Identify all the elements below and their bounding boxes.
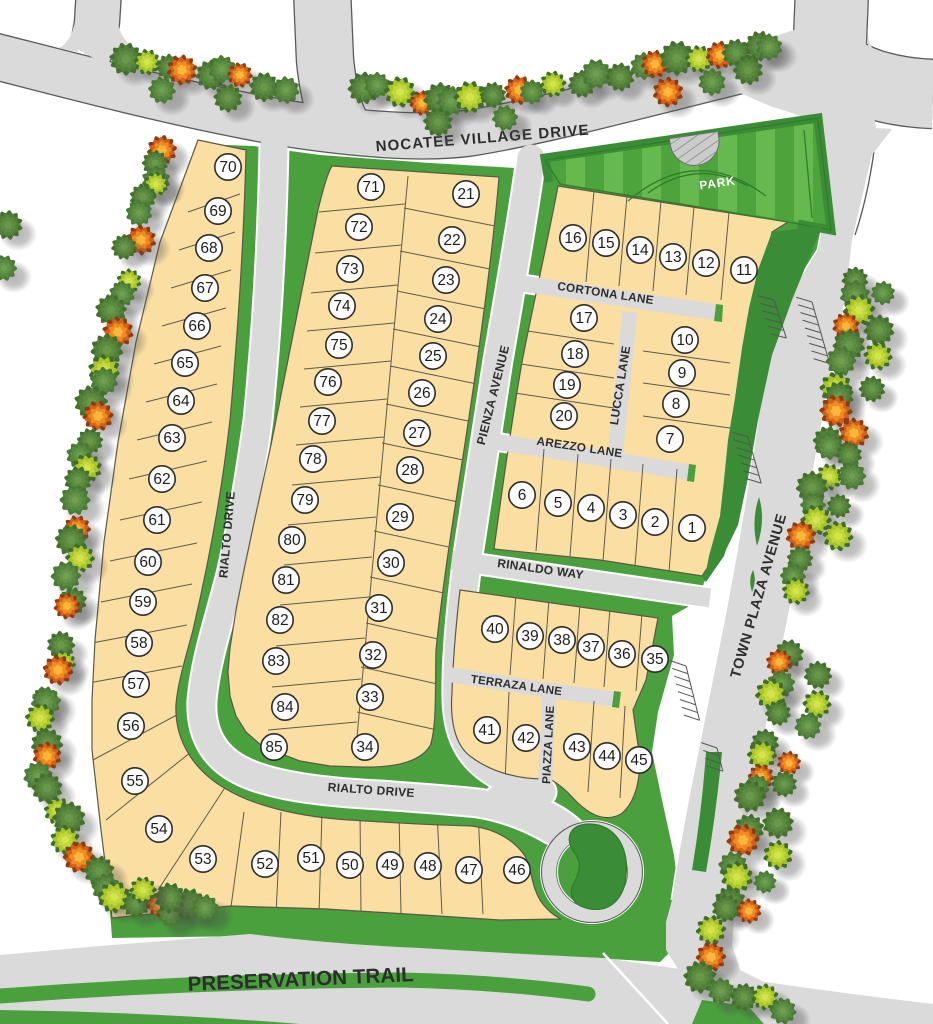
svg-text:23: 23 <box>437 272 454 289</box>
svg-text:46: 46 <box>508 862 525 879</box>
svg-text:48: 48 <box>419 858 436 875</box>
svg-text:21: 21 <box>457 186 474 203</box>
svg-text:61: 61 <box>148 512 165 529</box>
svg-text:20: 20 <box>555 408 573 425</box>
svg-text:18: 18 <box>566 346 583 363</box>
svg-text:15: 15 <box>597 235 614 252</box>
svg-text:16: 16 <box>564 230 581 247</box>
svg-text:35: 35 <box>646 651 663 668</box>
svg-text:56: 56 <box>122 718 139 735</box>
svg-text:33: 33 <box>361 689 378 706</box>
svg-text:6: 6 <box>518 487 527 504</box>
svg-text:84: 84 <box>276 699 294 716</box>
svg-text:22: 22 <box>443 232 460 249</box>
svg-text:79: 79 <box>296 492 313 509</box>
svg-text:53: 53 <box>194 851 211 868</box>
svg-text:29: 29 <box>391 509 408 526</box>
svg-text:55: 55 <box>126 773 143 790</box>
svg-text:71: 71 <box>362 179 379 196</box>
svg-text:75: 75 <box>330 337 347 354</box>
svg-text:12: 12 <box>697 255 714 272</box>
svg-text:62: 62 <box>153 471 170 488</box>
svg-text:57: 57 <box>127 676 144 693</box>
svg-text:74: 74 <box>333 298 351 315</box>
svg-text:67: 67 <box>196 280 213 297</box>
svg-text:31: 31 <box>370 600 387 617</box>
svg-text:9: 9 <box>678 365 687 382</box>
svg-text:44: 44 <box>598 748 616 765</box>
svg-text:37: 37 <box>582 639 599 656</box>
svg-text:24: 24 <box>429 311 447 328</box>
svg-text:50: 50 <box>341 857 359 874</box>
svg-text:8: 8 <box>672 396 681 413</box>
svg-text:81: 81 <box>277 572 294 589</box>
svg-text:59: 59 <box>134 594 151 611</box>
svg-text:54: 54 <box>150 821 168 838</box>
svg-text:38: 38 <box>553 632 570 649</box>
svg-text:28: 28 <box>401 462 418 479</box>
svg-text:14: 14 <box>631 242 649 259</box>
svg-text:58: 58 <box>130 635 147 652</box>
svg-text:76: 76 <box>319 374 336 391</box>
svg-text:45: 45 <box>630 752 647 769</box>
svg-text:13: 13 <box>664 249 681 266</box>
svg-text:17: 17 <box>575 310 592 327</box>
svg-text:63: 63 <box>163 430 180 447</box>
svg-text:36: 36 <box>613 646 630 663</box>
svg-text:51: 51 <box>302 850 319 867</box>
svg-text:78: 78 <box>304 451 321 468</box>
svg-text:1: 1 <box>688 520 697 537</box>
svg-text:27: 27 <box>408 425 425 442</box>
svg-text:66: 66 <box>188 318 205 335</box>
svg-text:41: 41 <box>478 722 495 739</box>
svg-text:49: 49 <box>381 857 398 874</box>
svg-text:80: 80 <box>283 532 301 549</box>
svg-text:19: 19 <box>558 377 575 394</box>
svg-text:69: 69 <box>209 203 226 220</box>
svg-text:65: 65 <box>176 355 193 372</box>
svg-text:2: 2 <box>651 514 660 531</box>
svg-text:77: 77 <box>313 413 330 430</box>
svg-text:85: 85 <box>265 739 282 756</box>
svg-text:47: 47 <box>460 862 477 879</box>
svg-text:26: 26 <box>413 385 430 402</box>
svg-text:32: 32 <box>364 647 381 664</box>
svg-text:60: 60 <box>139 554 157 571</box>
svg-text:43: 43 <box>568 739 585 756</box>
svg-text:73: 73 <box>341 261 358 278</box>
svg-text:10: 10 <box>676 332 694 349</box>
svg-text:4: 4 <box>587 500 596 517</box>
svg-text:82: 82 <box>271 612 288 629</box>
svg-text:72: 72 <box>350 219 367 236</box>
svg-text:7: 7 <box>666 431 675 448</box>
svg-text:25: 25 <box>424 348 441 365</box>
svg-text:64: 64 <box>172 393 190 410</box>
svg-text:68: 68 <box>200 240 217 257</box>
svg-text:11: 11 <box>736 262 752 279</box>
svg-text:5: 5 <box>554 495 563 512</box>
svg-text:34: 34 <box>356 739 374 756</box>
svg-text:30: 30 <box>382 555 400 572</box>
svg-text:42: 42 <box>517 730 534 747</box>
svg-text:52: 52 <box>256 856 273 873</box>
svg-text:39: 39 <box>521 628 538 645</box>
svg-text:3: 3 <box>619 507 628 524</box>
svg-text:83: 83 <box>267 653 284 670</box>
svg-text:40: 40 <box>486 621 504 638</box>
svg-text:70: 70 <box>219 159 237 176</box>
